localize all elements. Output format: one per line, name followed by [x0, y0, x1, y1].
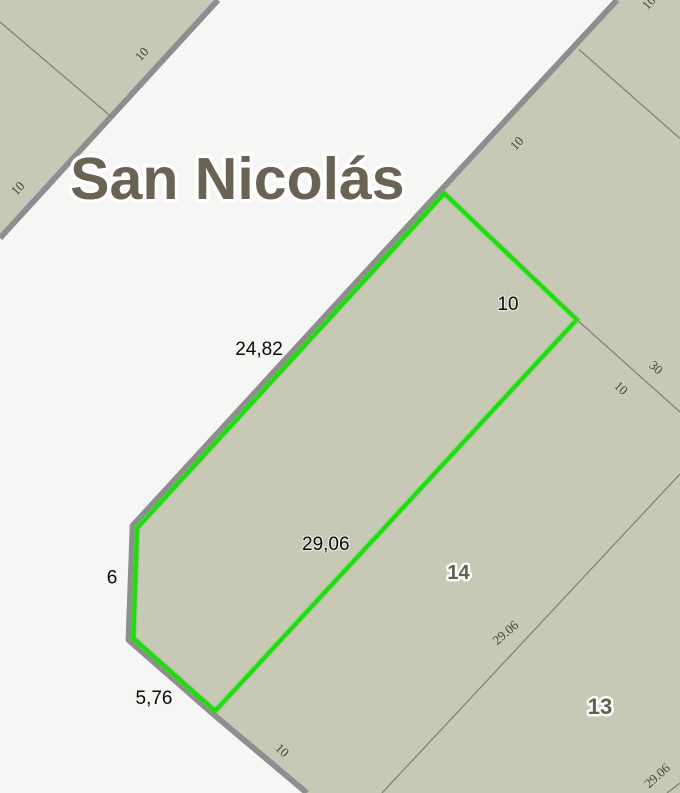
- svg-text:24,82: 24,82: [235, 339, 283, 360]
- svg-text:13: 13: [588, 694, 612, 719]
- svg-text:29,06: 29,06: [302, 534, 350, 555]
- svg-text:5,76: 5,76: [136, 688, 173, 709]
- svg-text:10: 10: [497, 294, 518, 315]
- svg-text:6: 6: [107, 568, 118, 589]
- svg-text:San Nicolás: San Nicolás: [70, 146, 404, 212]
- svg-text:14: 14: [447, 562, 470, 584]
